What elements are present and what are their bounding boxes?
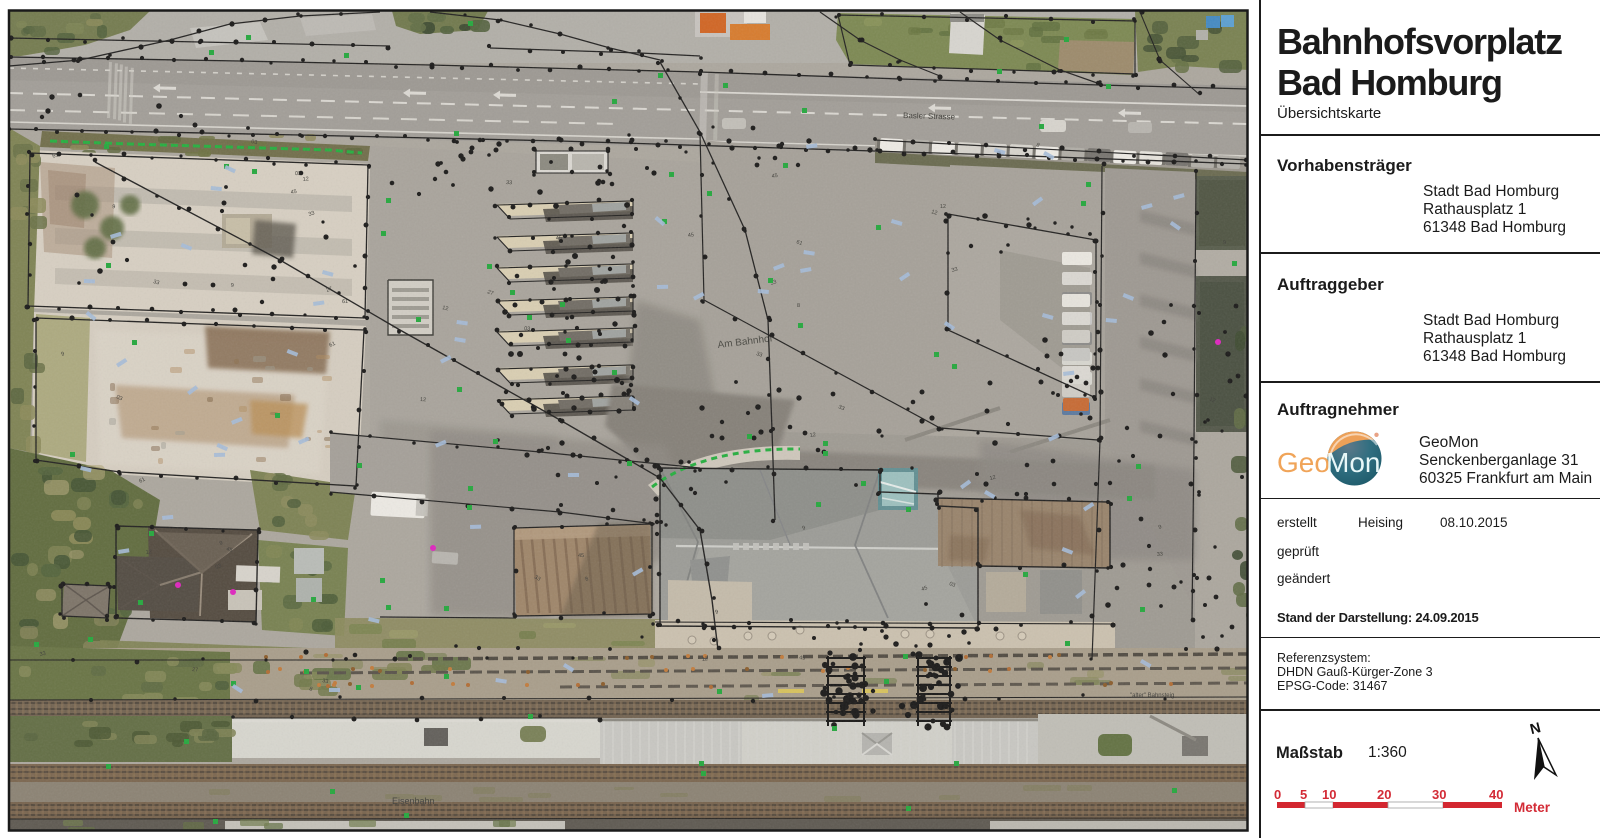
svg-text:Meter: Meter bbox=[1514, 800, 1551, 815]
svg-text:5: 5 bbox=[1300, 787, 1307, 802]
svg-text:N: N bbox=[1528, 720, 1542, 738]
svg-text:Geo: Geo bbox=[1277, 447, 1330, 478]
svg-text:30: 30 bbox=[1432, 787, 1446, 802]
svg-text:Mon: Mon bbox=[1326, 447, 1380, 478]
svg-text:40: 40 bbox=[1489, 787, 1503, 802]
svg-text:0: 0 bbox=[1274, 787, 1281, 802]
svg-text:10: 10 bbox=[1322, 787, 1336, 802]
svg-text:20: 20 bbox=[1377, 787, 1391, 802]
